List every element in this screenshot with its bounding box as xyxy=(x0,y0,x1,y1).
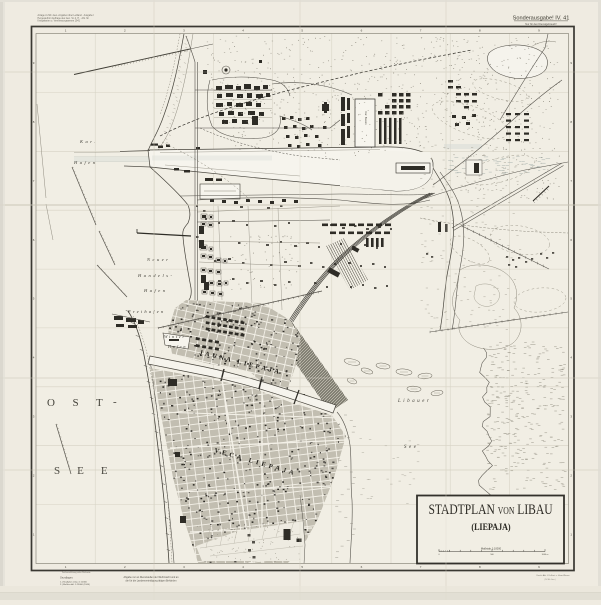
svg-text:Handels-: Handels- xyxy=(137,273,175,278)
svg-text:Kriegskarten u. Vermessungswes: Kriegskarten u. Vermessungswesen 1941 xyxy=(38,19,81,22)
svg-text:(LIEPAJA): (LIEPAJA) xyxy=(471,521,510,532)
svg-text:Zeichenerklärung siehe Rücksei: Zeichenerklärung siehe Rückseite xyxy=(62,571,90,574)
svg-text:Kar. Bassin: Kar. Bassin xyxy=(364,111,368,125)
svg-text:Neuer: Neuer xyxy=(146,257,171,262)
svg-text:OST: OST xyxy=(47,397,120,409)
svg-text:die für die Landesverteidigung: die für die Landesverteidigung tätigen B… xyxy=(126,579,178,582)
svg-text:Anlage zu Mil.-Geo.-Angaben üb: Anlage zu Mil.-Geo.-Angaben über Lettlan… xyxy=(38,14,95,17)
svg-text:2.) Meßtischbl. 1:25000 (1940): 2.) Meßtischbl. 1:25000 (1940) xyxy=(60,583,90,586)
svg-text:Libauer: Libauer xyxy=(397,399,431,404)
svg-text:1000 m: 1000 m xyxy=(542,554,549,556)
svg-text:See: See xyxy=(404,445,418,450)
svg-text:Hafen: Hafen xyxy=(143,288,168,293)
svg-text:Druck: Abt. f. Kr.Kart. u. Ver: Druck: Abt. f. Kr.Kart. u. Verm.Wesen xyxy=(537,574,570,577)
svg-text:Hafen: Hafen xyxy=(73,160,98,165)
svg-text:-: - xyxy=(113,396,117,408)
svg-text:1.) Stadtplan Libau 1:10400: 1.) Stadtplan Libau 1:10400 xyxy=(60,580,88,583)
svg-text:Winter: Winter xyxy=(164,334,186,339)
svg-text:Nur für den Dienstgebrauch!: Nur für den Dienstgebrauch! xyxy=(525,23,557,26)
svg-text:Kar.: Kar. xyxy=(79,139,98,144)
svg-text:Freihafen: Freihafen xyxy=(127,309,165,314)
svg-text:(IV. Mil.-Geo.): (IV. Mil.-Geo.) xyxy=(544,579,555,581)
svg-text:STADTPLAN VON LIBAU: STADTPLAN VON LIBAU xyxy=(428,501,552,518)
svg-text:SEE: SEE xyxy=(54,465,125,477)
svg-text:Maßstab 1:10000: Maßstab 1:10000 xyxy=(481,546,502,550)
svg-text:Grundlagen:: Grundlagen: xyxy=(60,577,73,580)
svg-text:Hafen: Hafen xyxy=(167,344,187,349)
